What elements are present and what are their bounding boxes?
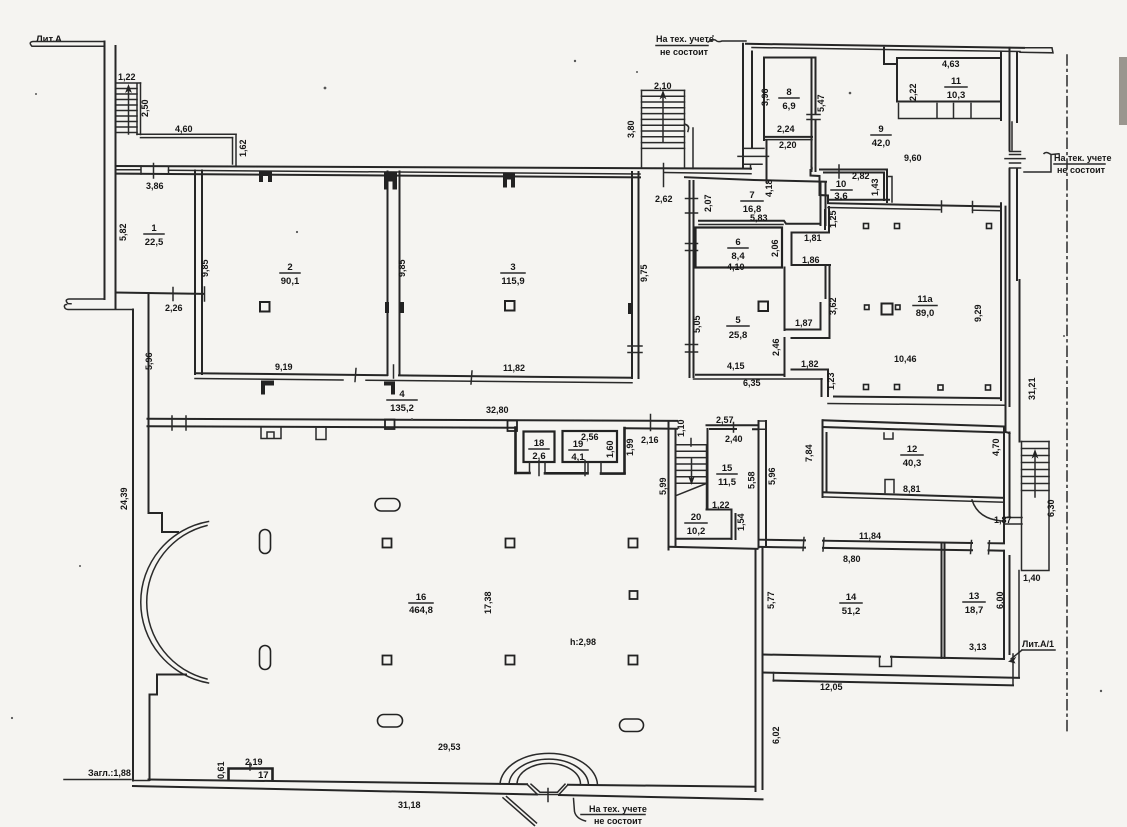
svg-text:5,82: 5,82 [118, 223, 128, 241]
svg-text:5,05: 5,05 [692, 315, 702, 333]
svg-text:1,22: 1,22 [118, 72, 136, 82]
svg-text:6,35: 6,35 [743, 378, 761, 388]
svg-text:1,23: 1,23 [826, 372, 836, 390]
svg-text:51,2: 51,2 [842, 606, 861, 617]
svg-text:2,57: 2,57 [716, 415, 734, 425]
svg-text:6,9: 6,9 [782, 101, 795, 112]
svg-text:5,83: 5,83 [750, 213, 768, 223]
svg-text:9,29: 9,29 [973, 304, 983, 322]
svg-text:9,60: 9,60 [904, 153, 922, 163]
svg-text:115,9: 115,9 [501, 276, 524, 287]
svg-text:25,8: 25,8 [729, 330, 748, 341]
svg-text:10: 10 [836, 179, 847, 190]
svg-text:5,96: 5,96 [767, 467, 777, 485]
svg-text:не состоит: не состоит [594, 816, 643, 826]
svg-text:Лит.А/1: Лит.А/1 [1022, 639, 1054, 649]
svg-text:1,82: 1,82 [801, 359, 819, 369]
svg-text:не состоит: не состоит [660, 47, 709, 57]
svg-text:8,80: 8,80 [843, 554, 861, 564]
svg-text:2,24: 2,24 [777, 124, 795, 134]
svg-text:24,39: 24,39 [119, 487, 129, 510]
svg-text:1,62: 1,62 [238, 139, 248, 157]
svg-text:42,0: 42,0 [872, 138, 891, 149]
svg-text:4,70: 4,70 [991, 438, 1001, 456]
svg-text:h:2,98: h:2,98 [570, 637, 596, 647]
svg-text:7,84: 7,84 [804, 444, 814, 462]
svg-text:16: 16 [416, 592, 427, 603]
svg-text:1,43: 1,43 [870, 178, 880, 196]
svg-text:135,2: 135,2 [390, 403, 414, 414]
svg-text:2,50: 2,50 [140, 99, 150, 117]
svg-text:не состоит: не состоит [1057, 165, 1106, 175]
svg-text:4,63: 4,63 [942, 59, 960, 69]
svg-text:1,86: 1,86 [802, 255, 820, 265]
svg-text:2,82: 2,82 [852, 171, 870, 181]
svg-text:2,19: 2,19 [245, 757, 263, 767]
svg-text:5: 5 [735, 315, 741, 326]
svg-text:29,53: 29,53 [438, 742, 461, 752]
svg-text:3,96: 3,96 [760, 88, 770, 106]
svg-text:3,86: 3,86 [146, 181, 164, 191]
svg-text:На тек. учете: На тек. учете [1054, 153, 1111, 163]
svg-text:Загл.:1,88: Загл.:1,88 [88, 768, 131, 778]
svg-text:12,05: 12,05 [820, 682, 843, 692]
svg-text:1,10: 1,10 [676, 419, 686, 437]
svg-text:1,81: 1,81 [804, 233, 822, 243]
svg-text:40,3: 40,3 [903, 458, 922, 469]
svg-text:8,4: 8,4 [731, 251, 745, 262]
svg-text:2,10: 2,10 [654, 81, 672, 91]
svg-text:2,26: 2,26 [165, 303, 183, 313]
svg-text:90,1: 90,1 [281, 276, 300, 287]
svg-text:3: 3 [510, 262, 515, 273]
svg-text:6,02: 6,02 [771, 726, 781, 744]
svg-text:1,40: 1,40 [1023, 573, 1041, 583]
svg-text:1,87: 1,87 [795, 318, 813, 328]
svg-text:89,0: 89,0 [916, 308, 935, 319]
svg-text:5,58: 5,58 [747, 471, 757, 489]
svg-text:Лит.А: Лит.А [36, 34, 62, 45]
svg-text:31,21: 31,21 [1027, 377, 1037, 400]
svg-text:3,62: 3,62 [828, 297, 838, 315]
svg-text:11,5: 11,5 [718, 477, 737, 488]
svg-text:2,62: 2,62 [655, 194, 673, 204]
svg-text:5,77: 5,77 [766, 591, 776, 609]
svg-text:3,13: 3,13 [969, 642, 987, 652]
svg-text:10,3: 10,3 [947, 90, 966, 101]
svg-text:14: 14 [846, 592, 857, 603]
svg-text:1,99: 1,99 [625, 438, 635, 456]
svg-text:11а: 11а [917, 294, 933, 305]
svg-text:2,56: 2,56 [581, 432, 599, 442]
svg-text:9,75: 9,75 [639, 264, 649, 282]
svg-text:2,46: 2,46 [771, 338, 781, 356]
svg-text:6,30: 6,30 [1046, 499, 1056, 517]
svg-text:1,54: 1,54 [736, 513, 746, 531]
svg-text:5,96: 5,96 [144, 352, 154, 370]
svg-text:10,46: 10,46 [894, 354, 917, 364]
svg-text:3,6: 3,6 [834, 191, 847, 202]
svg-text:4,10: 4,10 [727, 262, 745, 272]
svg-text:2,40: 2,40 [725, 434, 743, 444]
svg-text:5,99: 5,99 [658, 477, 668, 495]
svg-text:11,84: 11,84 [859, 531, 881, 541]
svg-text:На тех. учете: На тех. учете [656, 34, 714, 44]
svg-text:7: 7 [749, 190, 754, 201]
svg-text:4,60: 4,60 [175, 124, 193, 134]
svg-text:2,20: 2,20 [779, 140, 797, 150]
svg-text:18: 18 [534, 438, 545, 449]
svg-text:4,15: 4,15 [727, 361, 745, 371]
svg-text:32,80: 32,80 [486, 405, 509, 415]
svg-text:17,38: 17,38 [483, 591, 493, 614]
svg-text:2,06: 2,06 [770, 239, 780, 257]
svg-text:464,8: 464,8 [409, 605, 433, 616]
svg-text:13: 13 [969, 591, 980, 602]
svg-text:1,22: 1,22 [712, 500, 730, 510]
svg-text:1,25: 1,25 [828, 210, 838, 228]
svg-text:5,47: 5,47 [816, 94, 826, 112]
svg-text:8: 8 [786, 87, 791, 98]
svg-text:8,81: 8,81 [903, 484, 921, 494]
svg-text:1,87: 1,87 [994, 515, 1012, 525]
svg-text:3,80: 3,80 [626, 120, 636, 138]
svg-text:18,7: 18,7 [965, 605, 984, 616]
svg-text:9,19: 9,19 [275, 362, 293, 372]
svg-text:2,22: 2,22 [908, 83, 918, 101]
svg-text:11,82: 11,82 [503, 363, 525, 373]
svg-text:12: 12 [907, 444, 918, 455]
svg-text:9: 9 [878, 124, 883, 135]
svg-text:0,61: 0,61 [216, 761, 226, 779]
svg-text:2,16: 2,16 [641, 435, 659, 445]
svg-text:31,18: 31,18 [398, 800, 421, 810]
svg-text:2: 2 [287, 262, 292, 273]
svg-text:1: 1 [151, 223, 157, 234]
svg-text:6: 6 [735, 237, 740, 248]
svg-text:1,60: 1,60 [605, 440, 615, 458]
svg-text:10,2: 10,2 [687, 526, 706, 537]
svg-text:4,1: 4,1 [571, 452, 585, 463]
svg-text:11: 11 [951, 76, 962, 87]
svg-text:9,85: 9,85 [397, 259, 407, 277]
svg-text:15: 15 [722, 463, 733, 474]
svg-text:На тех. учете: На тех. учете [589, 804, 647, 814]
svg-text:4: 4 [399, 389, 405, 400]
svg-text:2,07: 2,07 [703, 194, 713, 212]
svg-text:20: 20 [691, 512, 702, 523]
svg-text:22,5: 22,5 [145, 237, 164, 248]
svg-text:17: 17 [258, 770, 269, 781]
svg-text:9,85: 9,85 [200, 259, 210, 277]
